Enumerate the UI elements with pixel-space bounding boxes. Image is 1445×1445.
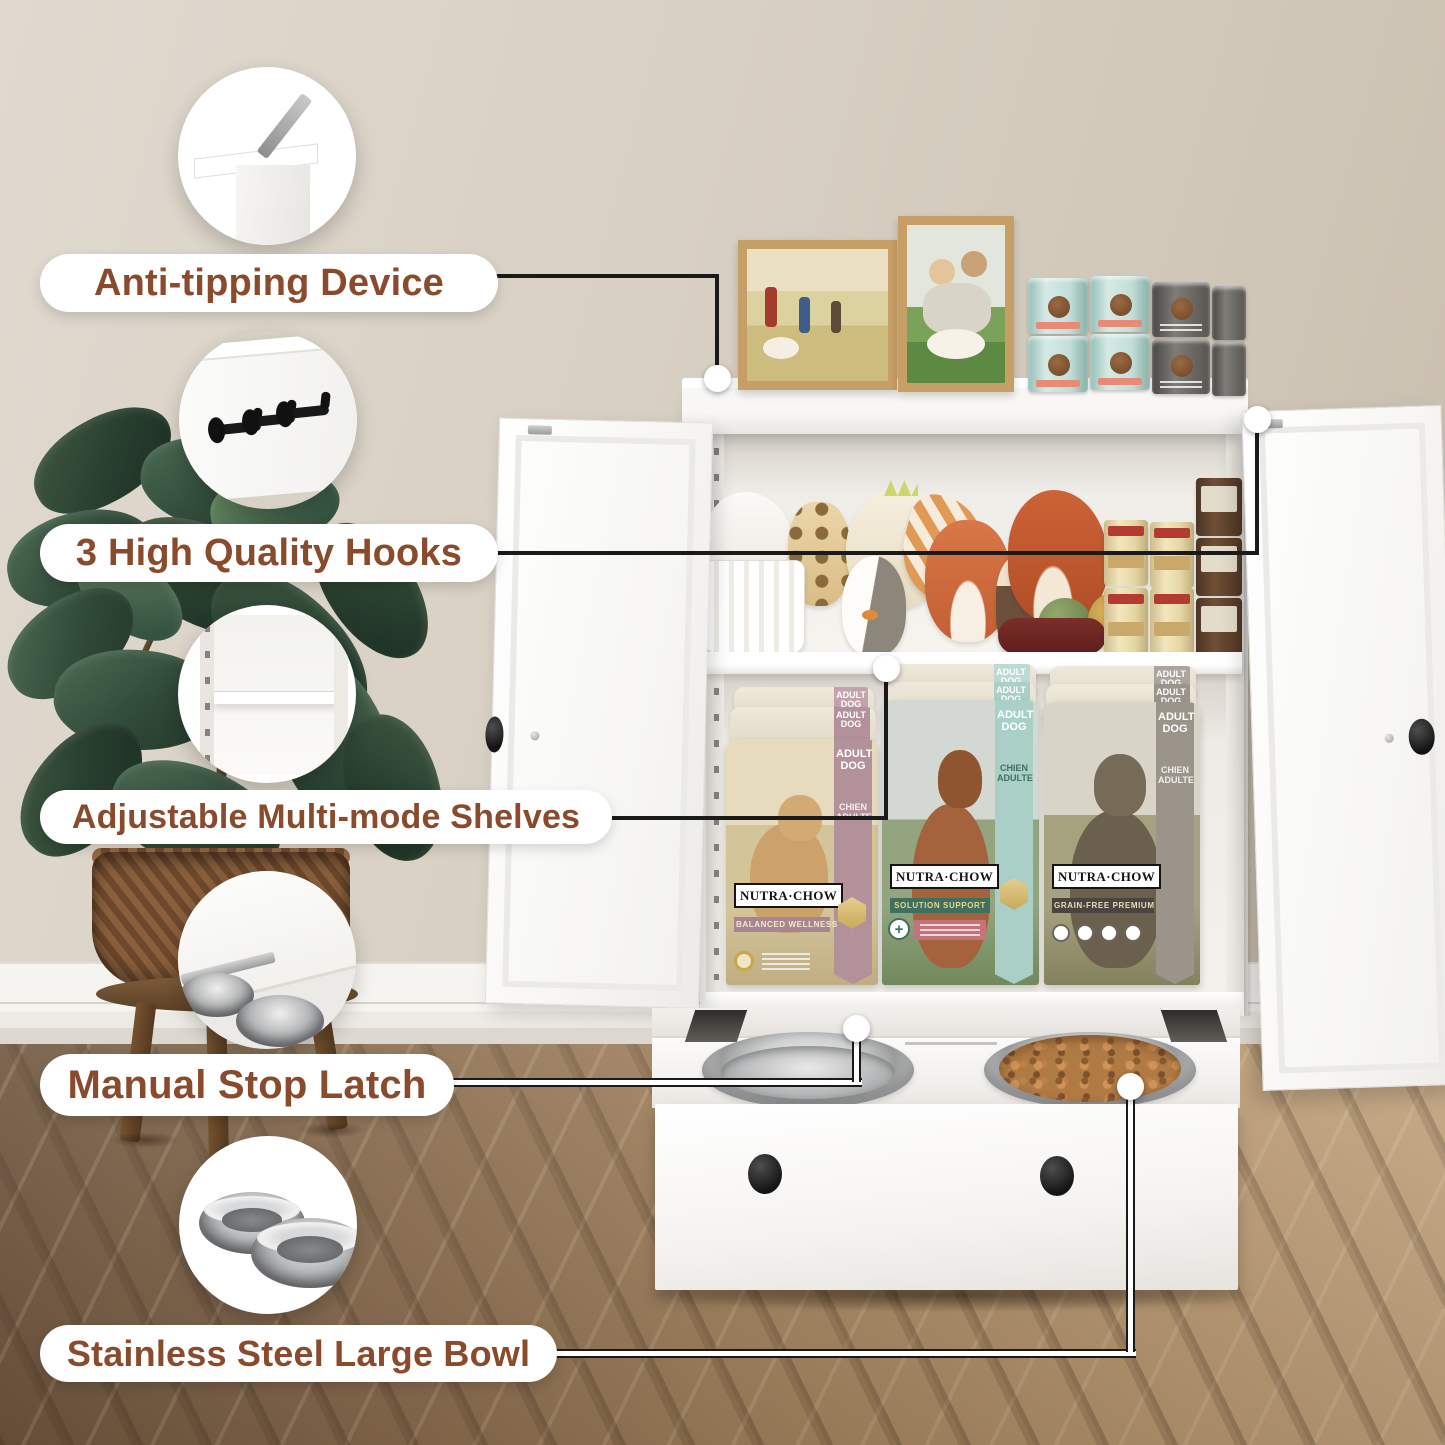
feature-badge [1076, 924, 1094, 942]
plush-penguin [842, 556, 906, 656]
callout-label-hooks: 3 High Quality Hooks [40, 524, 498, 582]
photo-person [831, 301, 841, 333]
leader-dot-hooks [1244, 406, 1271, 433]
slide-rail-slot [1161, 1010, 1227, 1042]
dog-food-can-yellow [1104, 588, 1148, 654]
callout-label-latch: Manual Stop Latch [40, 1054, 454, 1116]
product-line-label: BALANCED WELLNESS [734, 917, 830, 932]
callout-label-shelves: Adjustable Multi-mode Shelves [40, 790, 612, 844]
bag-banner: ADULT DOG CHIEN ADULTE [995, 700, 1033, 971]
bag-banner: ADULT DOG CHIEN ADULTE [834, 739, 872, 971]
benefit-box [914, 920, 986, 940]
left-cabinet-door [485, 417, 713, 1008]
dog-photo [1070, 810, 1162, 968]
leader-line-latch [450, 1078, 862, 1087]
leader-dot-shelves [873, 655, 900, 682]
dog-food-can-gray [1152, 282, 1210, 337]
leader-line-anti-tip [490, 274, 719, 278]
penguin-beak [862, 610, 878, 620]
kibble-food [999, 1035, 1181, 1102]
dog-photo-head [938, 750, 982, 808]
dog-food-can-brown [1196, 598, 1242, 656]
adjustable-shelf-icon [178, 605, 356, 783]
leader-line-hooks [1255, 423, 1259, 553]
three-hooks-icon [179, 331, 357, 509]
door-knob [485, 716, 504, 752]
callout-label-bowl: Stainless Steel Large Bowl [40, 1325, 557, 1382]
dog-food-can-brown [1196, 538, 1242, 596]
right-cabinet-door [1241, 405, 1445, 1091]
brand-label: NUTRA·CHOW [734, 887, 843, 905]
dog-food-bag-solution-support: ADULT DOG CHIEN ADULTE NUTRA·CHOW SOLUTI… [882, 700, 1039, 985]
photo-dog [927, 329, 985, 359]
leader-line-bowl [1126, 1092, 1135, 1352]
drawer-front [655, 1104, 1238, 1290]
photo-person [961, 251, 987, 277]
product-line-label: GRAIN-FREE PREMIUM [1052, 898, 1154, 913]
leader-line-bowl [552, 1349, 1136, 1358]
photo-frame-portrait [898, 216, 1014, 392]
brand-label: NUTRA·CHOW [1052, 868, 1161, 886]
dog-food-can-teal [1090, 276, 1150, 332]
stainless-bowl-empty [702, 1032, 914, 1108]
round-seal [734, 951, 754, 971]
dog-food-can-gray [1212, 342, 1246, 396]
leader-dot-latch [843, 1015, 870, 1042]
dog-photo-head [1094, 754, 1146, 816]
photo-frame-landscape [738, 240, 897, 390]
product-line-label: SOLUTION SUPPORT [890, 898, 990, 913]
shelf-board [214, 691, 342, 704]
dog-food-can-yellow [1150, 522, 1194, 588]
dog-food-can-teal [1090, 334, 1150, 390]
storage-basket [703, 560, 805, 654]
bag-banner: ADULT DOG CHIEN ADULTE [1156, 702, 1194, 971]
photo-person [799, 297, 810, 333]
dog-food-can-teal [1028, 278, 1088, 334]
dog-food-can-teal [1028, 336, 1088, 392]
shelf-pin-holes [714, 688, 719, 980]
feature-badge [1052, 924, 1070, 942]
photo-person [765, 287, 777, 327]
slide-rail-slot [685, 1010, 747, 1042]
plus-badge: + [888, 918, 910, 940]
drawer-knob [1040, 1156, 1074, 1196]
stainless-bowl [251, 1218, 357, 1288]
photo-dog [763, 337, 799, 359]
dog-food-bag-balanced-wellness: ADULT DOG CHIEN ADULTE NUTRA·CHOW BALANC… [726, 739, 878, 985]
leader-dot-anti-tip [704, 365, 731, 392]
photo-couple [923, 283, 991, 335]
stainless-bowls-icon [179, 1136, 357, 1314]
dog-food-can-yellow [1150, 588, 1194, 654]
leader-line-shelves [605, 816, 888, 820]
brand-label: NUTRA·CHOW [890, 868, 999, 886]
leader-line-anti-tip [715, 274, 719, 374]
anti-tip-bracket-icon [178, 67, 356, 245]
red-bone-toy [998, 618, 1106, 654]
product-feature-image: ADULT DOG ADULT DOG ADULT DOG ADULT DOG … [0, 0, 1445, 1445]
feature-badge [1124, 924, 1142, 942]
leader-line-hooks [490, 551, 1259, 555]
dog-food-can-brown [1196, 478, 1242, 536]
leader-dot-bowl [1117, 1073, 1144, 1100]
photo-person [929, 259, 955, 285]
dog-food-can-gray [1152, 339, 1210, 394]
leader-line-shelves [884, 672, 888, 818]
dog-food-can-gray [1212, 286, 1246, 340]
manual-stop-latch-icon [178, 871, 356, 1049]
door-hinge [528, 425, 552, 435]
stop-latch [905, 1042, 997, 1045]
drawer-knob [748, 1154, 782, 1194]
dog-food-bag-grain-free-premium: ADULT DOG CHIEN ADULTE NUTRA·CHOW GRAIN-… [1044, 702, 1200, 985]
feature-badge [1100, 924, 1118, 942]
stainless-bowl-kibble [984, 1032, 1196, 1108]
callout-label-anti-tip: Anti-tipping Device [40, 254, 498, 312]
